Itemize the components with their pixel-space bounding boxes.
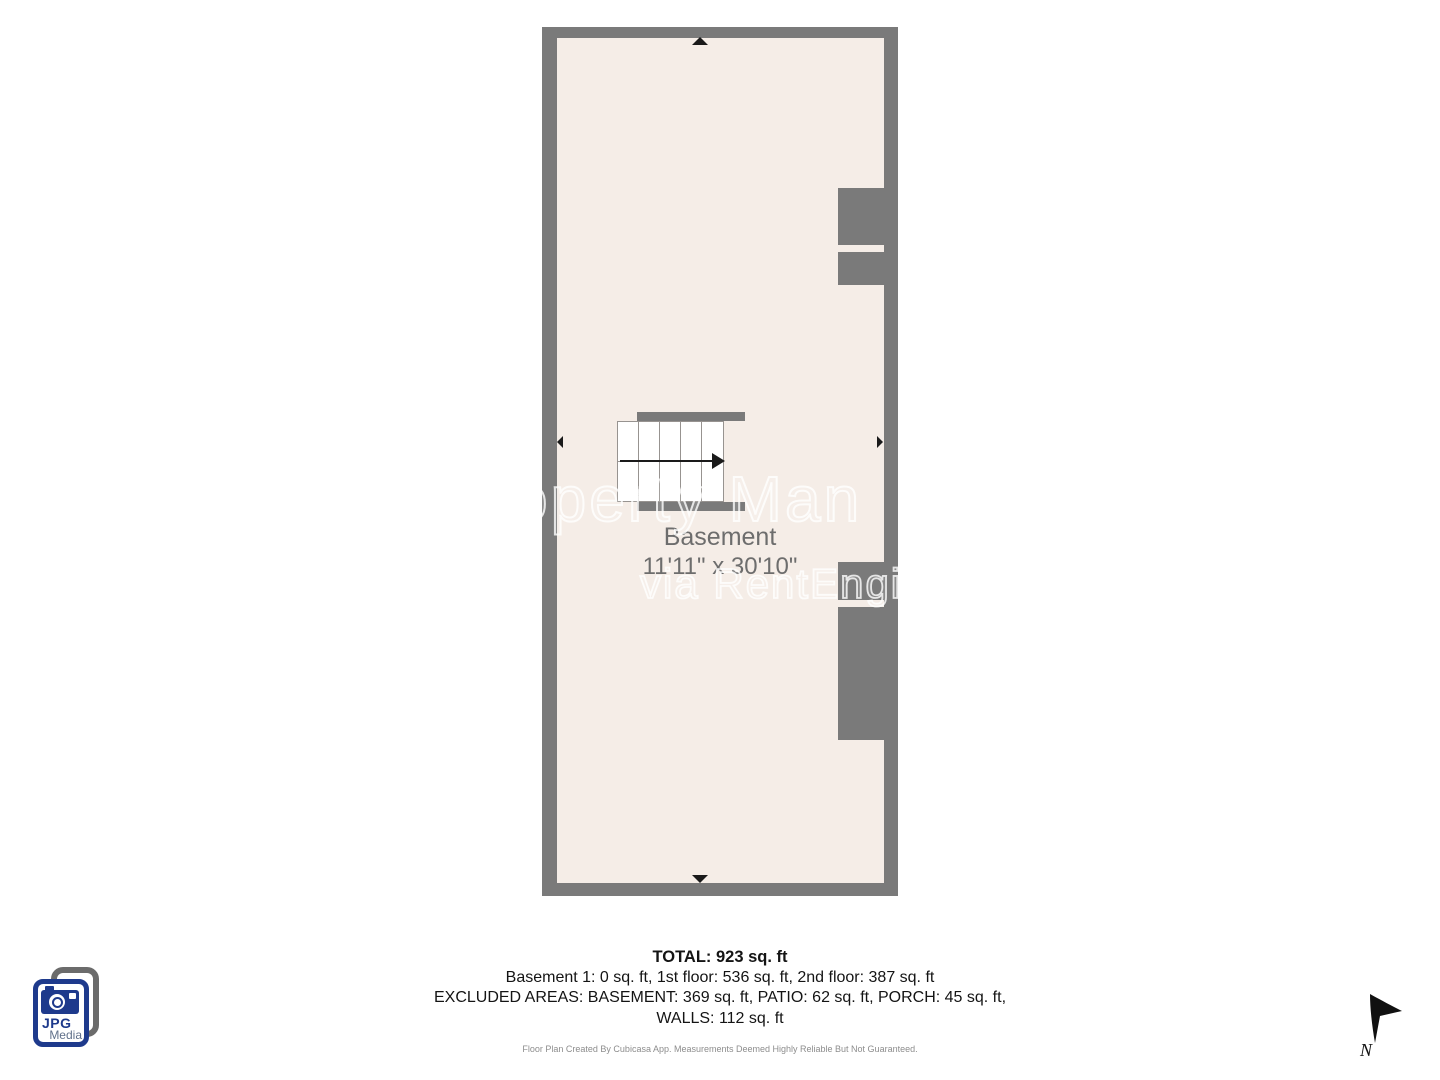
camera-icon: [41, 990, 79, 1014]
stair-upper-wall: [637, 412, 745, 421]
dimension-marker-right-icon: [877, 436, 883, 448]
wall-protrusion-lower-right-2: [838, 607, 898, 740]
stair-direction-arrow: [620, 460, 713, 462]
north-arrow-icon: [1358, 988, 1414, 1046]
wall-protrusion-upper-right-1: [838, 188, 884, 245]
stair-lower-wall: [637, 502, 745, 511]
logo-front-card: JPG Media: [33, 979, 89, 1047]
floor-plan: Basement 11'11" x 30'10": [542, 27, 898, 896]
jpg-media-logo: JPG Media: [33, 967, 105, 1051]
disclaimer-text: Floor Plan Created By Cubicasa App. Meas…: [0, 1044, 1440, 1054]
wall-protrusion-upper-right-2: [838, 252, 884, 285]
stair-tread: [660, 422, 681, 462]
stair-tread: [639, 462, 660, 502]
stair-tread: [639, 422, 660, 462]
summary-floors: Basement 1: 0 sq. ft, 1st floor: 536 sq.…: [0, 968, 1440, 989]
room-label: Basement 11'11" x 30'10": [542, 523, 898, 580]
dimension-marker-left-icon: [557, 436, 563, 448]
stair-tread: [660, 462, 681, 502]
camera-lens-inner-icon: [52, 997, 63, 1008]
stair-direction-arrowhead-icon: [712, 453, 725, 469]
staircase: [617, 412, 745, 538]
camera-flash-icon: [45, 986, 54, 991]
area-summary: TOTAL: 923 sq. ft Basement 1: 0 sq. ft, …: [0, 947, 1440, 1029]
room-dimensions: 11'11" x 30'10": [542, 553, 898, 580]
room-name: Basement: [542, 523, 898, 551]
stair-tread: [618, 462, 639, 502]
compass: N: [1358, 988, 1414, 1064]
logo-subtitle: Media: [49, 1028, 82, 1042]
stair-tread: [618, 422, 639, 462]
summary-walls: WALLS: 112 sq. ft: [0, 1009, 1440, 1030]
camera-lens-icon: [49, 994, 65, 1010]
camera-viewfinder-icon: [69, 993, 76, 999]
north-label: N: [1360, 1040, 1372, 1061]
stair-tread: [681, 422, 702, 462]
dimension-marker-down-icon: [692, 875, 708, 883]
stair-tread: [681, 462, 702, 502]
dimension-marker-up-icon: [692, 37, 708, 45]
summary-total: TOTAL: 923 sq. ft: [0, 947, 1440, 968]
summary-excluded-areas: EXCLUDED AREAS: BASEMENT: 369 sq. ft, PA…: [0, 988, 1440, 1009]
